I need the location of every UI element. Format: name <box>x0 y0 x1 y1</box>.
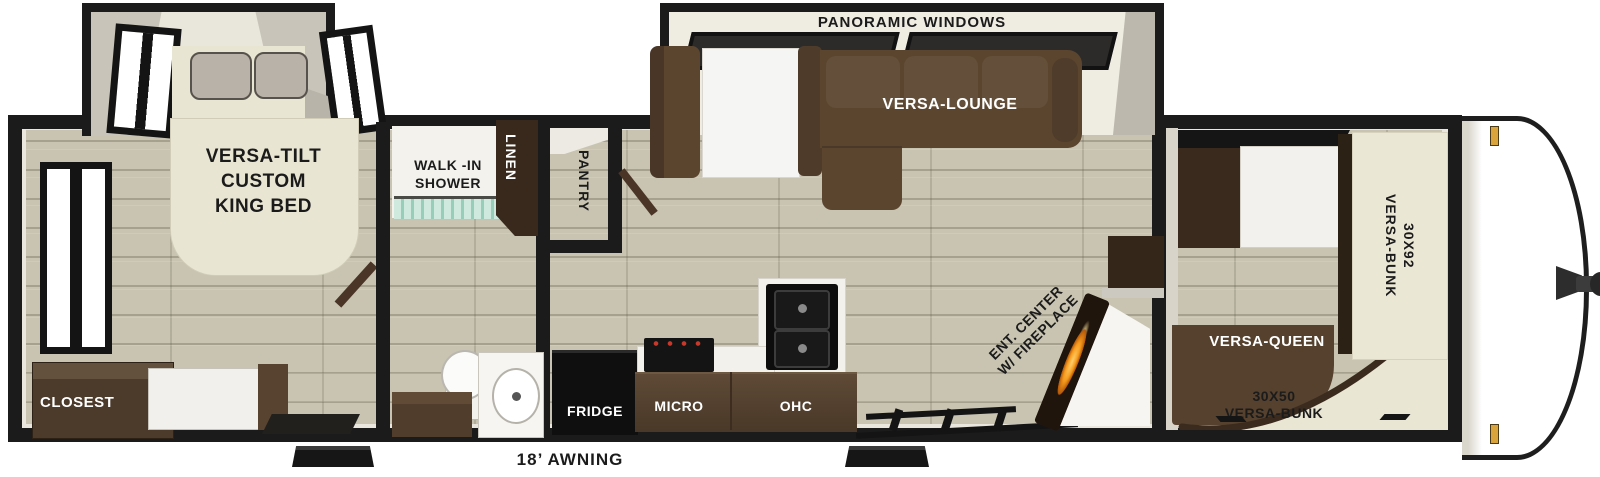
closet-label: CLOSEST <box>40 394 114 411</box>
exterior-wall-front <box>1448 115 1462 442</box>
lounge-table <box>702 48 800 178</box>
bedroom-entry-mat <box>262 414 360 434</box>
step-rail <box>866 406 1016 420</box>
wall-bedroom-bath <box>376 122 390 432</box>
exterior-wall-top-front <box>1138 115 1462 129</box>
linen-label: LINEN <box>503 134 519 214</box>
fridge-label: FRIDGE <box>552 403 638 419</box>
shower-label: WALK -IN SHOWER <box>392 156 504 192</box>
pillow <box>190 52 252 100</box>
bunk-wardrobe <box>1178 148 1242 248</box>
sofa-armrest <box>1052 58 1078 142</box>
king-bed-label: VERSA-TILT CUSTOM KING BED <box>170 144 357 219</box>
marker-light <box>1490 126 1499 146</box>
cabinet-divider <box>730 372 732 430</box>
rv-floorplan: VERSA-TILT CUSTOM KING BED CLOSEST WALK … <box>0 0 1600 477</box>
wall-pantry-bottom <box>536 240 622 253</box>
stove-knobs <box>652 341 708 346</box>
pantry-label: PANTRY <box>576 150 592 234</box>
awning-label: 18’ AWNING <box>460 450 680 470</box>
sink-drain <box>798 344 807 353</box>
hitch-knob <box>1590 272 1600 296</box>
bath-cabinet <box>392 392 472 437</box>
shower-glass-door <box>394 196 502 219</box>
sink-basin <box>774 290 830 330</box>
exterior-wall-rear <box>8 115 22 442</box>
wall-pantry-right <box>608 122 622 252</box>
rear-wall-window <box>40 162 112 354</box>
floor-mark <box>1215 416 1246 422</box>
kitchen-sink <box>766 284 838 370</box>
entry-step <box>845 446 929 467</box>
pillow <box>254 52 308 99</box>
sink-basin <box>774 330 830 368</box>
versa-queen-label: VERSA-QUEEN <box>1192 333 1342 350</box>
bath-sink-drain <box>512 392 521 401</box>
micro-label: MICRO <box>637 398 721 414</box>
fridge <box>552 350 638 435</box>
marker-light <box>1490 424 1499 444</box>
versa-lounge-label: VERSA-LOUNGE <box>860 96 1040 114</box>
bunk-30x92-label: 30X92 VERSA-BUNK <box>1382 194 1418 297</box>
dresser <box>148 368 266 430</box>
stove-cooktop <box>644 338 714 372</box>
ohc-label: OHC <box>752 398 840 414</box>
sofa-chaise <box>822 146 902 210</box>
panoramic-windows-label: PANORAMIC WINDOWS <box>669 14 1155 31</box>
sink-drain <box>798 304 807 313</box>
bunk-mattress <box>1240 146 1346 248</box>
tv-cabinet <box>1108 236 1164 290</box>
floor-mark <box>1379 414 1410 420</box>
bunk-30x92: 30X92 VERSA-BUNK <box>1352 132 1448 360</box>
entry-step <box>292 446 374 467</box>
sofa-armrest <box>798 46 822 176</box>
tv-shelf <box>1102 288 1164 298</box>
lounge-chair <box>650 46 700 178</box>
